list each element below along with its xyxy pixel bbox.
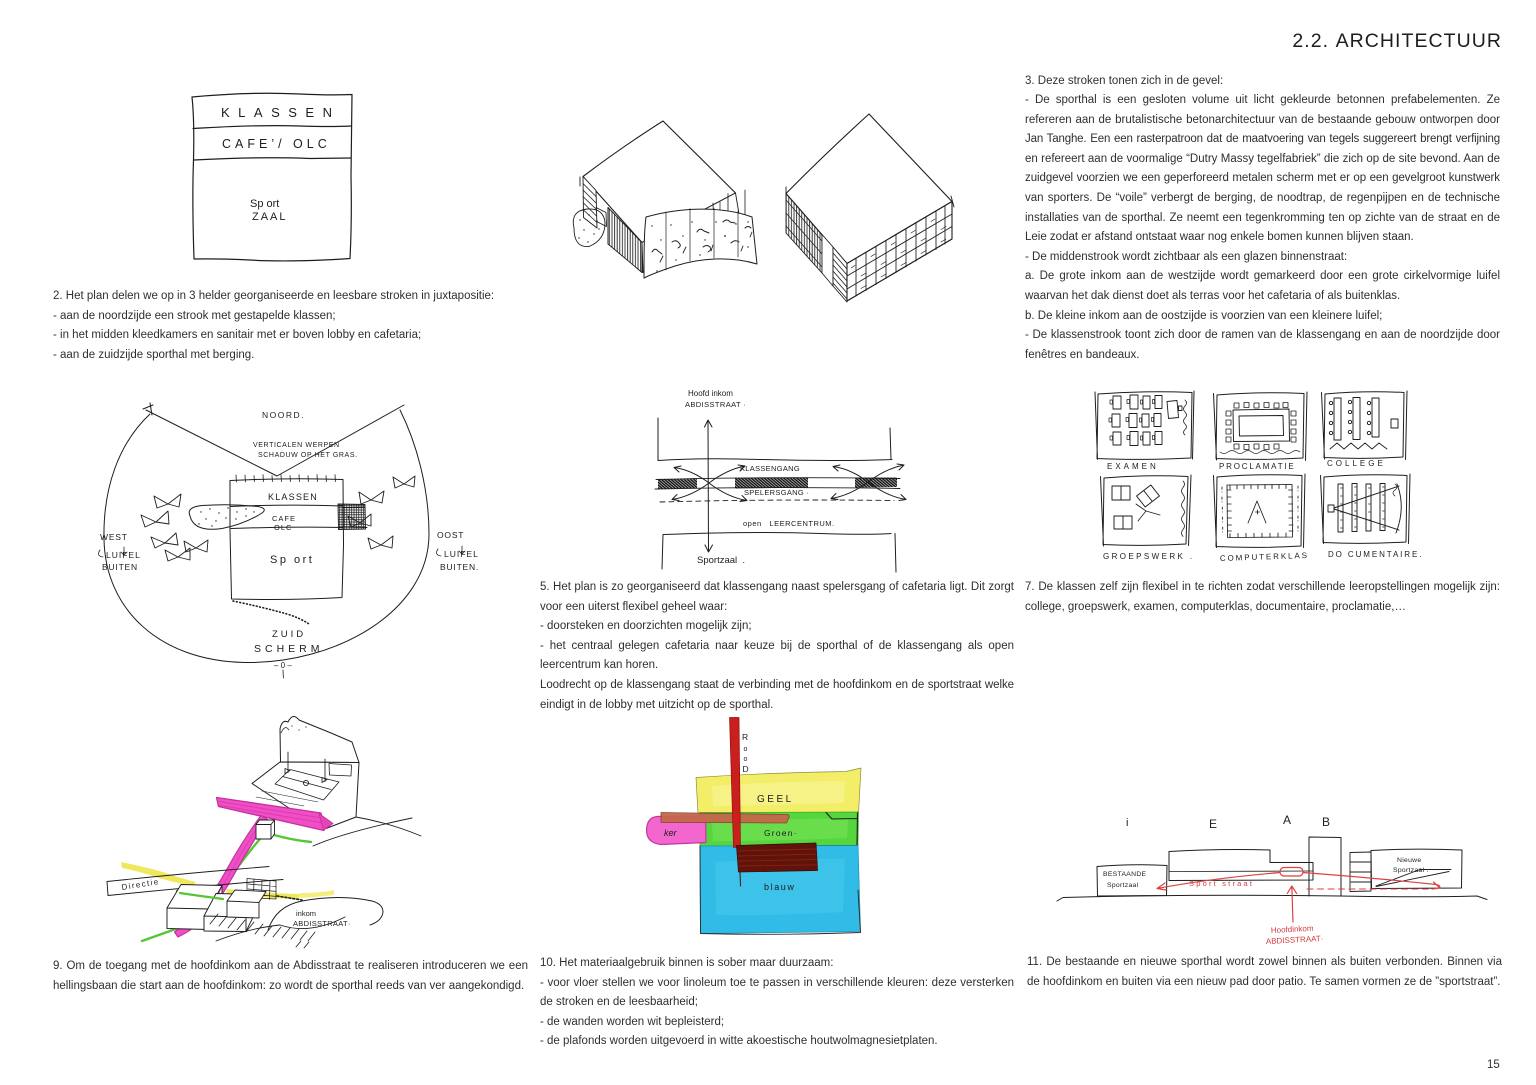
svg-text:ZAAL: ZAAL [252, 211, 288, 223]
svg-text:open LEERCENTRUM.: open LEERCENTRUM. [743, 519, 835, 528]
svg-text:Hoofd inkom: Hoofd inkom [688, 389, 733, 398]
svg-text:KLASSEN: KLASSEN [221, 105, 340, 120]
svg-text:GEEL: GEEL [757, 794, 794, 805]
svg-text:– 0 –: – 0 – [274, 661, 292, 670]
svg-text:o: o [744, 756, 748, 763]
svg-text:SCHADUW OP HET GRAS.: SCHADUW OP HET GRAS. [258, 452, 358, 459]
svg-text:ABDISSTRAAT·: ABDISSTRAAT· [293, 919, 351, 928]
svg-text:LUIFEL: LUIFEL [106, 550, 141, 560]
svg-text:inkom: inkom [296, 909, 316, 918]
svg-text:Sportzaal .: Sportzaal . [697, 555, 745, 566]
svg-text:Hoofdinkom: Hoofdinkom [1271, 924, 1314, 935]
svg-text:KLASSENGANG: KLASSENGANG [740, 464, 800, 473]
svg-text:SPELERSGANG ·: SPELERSGANG · [744, 488, 809, 497]
svg-text:o: o [744, 746, 748, 753]
svg-text:WEST: WEST [100, 532, 128, 542]
svg-text:CAFE’/ OLC: CAFE’/ OLC [222, 137, 331, 151]
svg-text:Sport straat: Sport straat [1189, 879, 1254, 888]
svg-text:Sp ort: Sp ort [250, 198, 279, 210]
svg-text:VERTICALEN WERPEN: VERTICALEN WERPEN [253, 442, 340, 449]
svg-text:A: A [1283, 813, 1291, 827]
svg-text:Sp ort: Sp ort [270, 554, 314, 566]
svg-text:D: D [743, 764, 749, 774]
svg-text:PROCLAMATIE: PROCLAMATIE [1219, 462, 1296, 471]
svg-text:Sportzaal: Sportzaal [1107, 882, 1139, 889]
svg-text:ker: ker [664, 828, 678, 838]
svg-text:COMPUTERKLAS: COMPUTERKLAS [1220, 551, 1309, 563]
svg-text:ABDISSTRAAT·: ABDISSTRAAT· [1266, 934, 1324, 946]
svg-text:ZUID: ZUID [272, 629, 306, 640]
svg-text:OLC: OLC [274, 523, 292, 532]
svg-text:Groen·: Groen· [764, 828, 798, 838]
svg-text:R: R [742, 732, 748, 742]
svg-text:NOORD.: NOORD. [262, 410, 305, 420]
svg-text:Nieuwe: Nieuwe [1397, 857, 1421, 864]
svg-text:E: E [1209, 817, 1217, 831]
svg-text:blauw: blauw [764, 882, 796, 892]
svg-text:KLASSEN: KLASSEN [268, 492, 318, 502]
svg-text:LUIFEL: LUIFEL [444, 549, 479, 559]
svg-text:i: i [1126, 817, 1128, 829]
svg-text:BESTAANDE: BESTAANDE [1103, 871, 1147, 878]
svg-text:DO CUMENTAIRE.: DO CUMENTAIRE. [1328, 550, 1423, 559]
svg-text:GROEPSWERK .: GROEPSWERK . [1103, 552, 1194, 561]
svg-text:OOST: OOST [437, 530, 464, 540]
svg-text:COLLEGE: COLLEGE [1327, 459, 1386, 468]
svg-text:CAFE: CAFE [272, 514, 296, 523]
svg-text:BUITEN: BUITEN [102, 562, 138, 572]
svg-text:EXAMEN: EXAMEN [1107, 462, 1159, 471]
svg-text:SCHERM: SCHERM [254, 643, 324, 655]
svg-text:ABDISSTRAAT ·: ABDISSTRAAT · [685, 400, 746, 409]
svg-text:BUITEN.: BUITEN. [440, 562, 479, 572]
svg-text:B: B [1322, 815, 1330, 829]
